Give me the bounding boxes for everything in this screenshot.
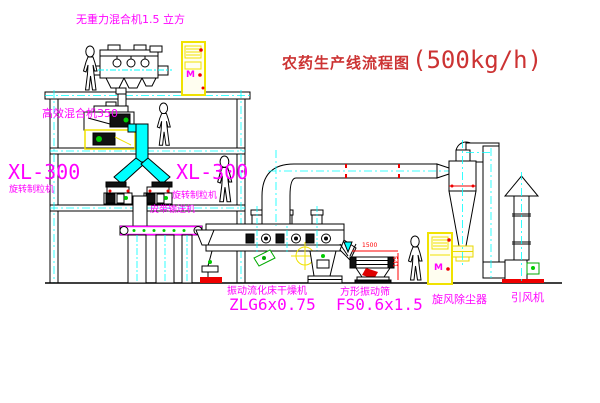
title-text: 农药生产线流程图 (282, 52, 410, 73)
belt-conveyor (120, 226, 202, 235)
label-granulator-left-model: XL-300 (8, 162, 80, 182)
red-base-pad (200, 277, 222, 283)
label-gravity-mixer: 无重力混合机1.5 立方 (76, 14, 185, 25)
dimension-screen-length: 1500 (362, 243, 377, 249)
label-granulator-left-name: 旋转制粒机 (9, 186, 54, 195)
cabinet2-mark: M (434, 263, 443, 273)
person-floor2 (157, 103, 170, 145)
y-split-pipe (106, 158, 172, 187)
fan-base (502, 279, 544, 283)
induced-draft-fan (502, 172, 544, 283)
indicator-dot (446, 267, 450, 271)
cad-flow-diagram: 农药生产线流程图 (500kg/h) 无重力混合机1.5 立方 高效混合机350… (0, 0, 600, 403)
diagram-title: 农药生产线流程图 (500kg/h) (282, 46, 542, 74)
support-pillars (128, 235, 192, 283)
indicator-dot (198, 73, 202, 77)
label-screen-model: FS0.6x1.5 (336, 297, 423, 313)
indicator-dot (199, 48, 203, 52)
mixer-discharge-pipe (136, 124, 148, 162)
label-granulator-right-model: XL-300 (176, 162, 248, 182)
label-cyclone: 旋风除尘器 (432, 294, 487, 305)
label-fan: 引风机 (511, 292, 544, 303)
indicator-dot (447, 238, 451, 242)
granulator-left (102, 187, 134, 205)
fan-scroll (505, 260, 527, 281)
label-granulator-right-name: 旋转制粒机 (172, 192, 217, 201)
label-dryer-model: ZLG6x0.75 (229, 297, 316, 313)
cabinet1-mark: M (186, 70, 195, 80)
control-cabinet-2 (428, 233, 452, 284)
label-belt-conveyor: 皮带输送机 (150, 206, 195, 215)
indicator-dot (202, 87, 205, 90)
granulator-discharge-duct (133, 196, 147, 226)
person-ground (409, 236, 423, 280)
title-capacity: (500kg/h) (412, 46, 542, 74)
control-cabinet-1 (182, 42, 205, 95)
label-high-eff-mixer: 高效混合机350 (42, 108, 118, 119)
person-roof (84, 46, 98, 90)
dimension-screen-height: 541 (391, 256, 397, 267)
